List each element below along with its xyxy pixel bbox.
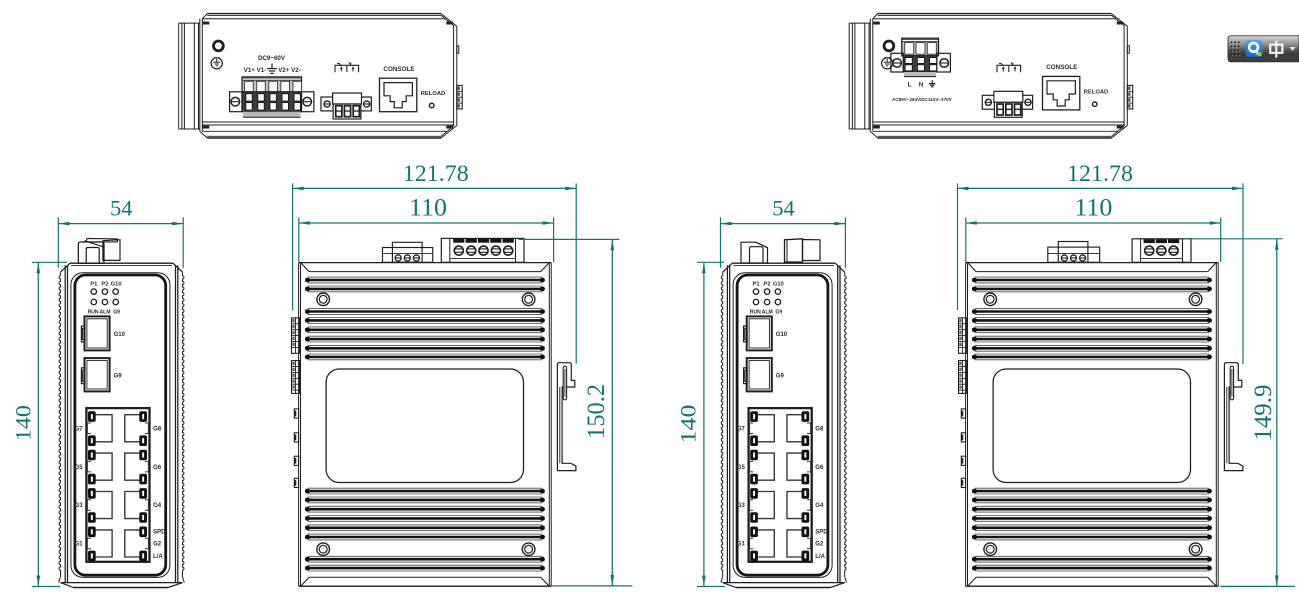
svg-text:G9: G9 — [776, 373, 785, 379]
svg-text:L/A: L/A — [815, 554, 825, 560]
svg-text:G6: G6 — [815, 465, 824, 471]
svg-text:P1: P1 — [90, 281, 98, 287]
svg-text:L: L — [908, 82, 912, 89]
svg-text:G5: G5 — [75, 465, 84, 471]
svg-text:P1: P1 — [752, 281, 760, 287]
svg-text:149.9: 149.9 — [1250, 385, 1277, 441]
svg-text:140: 140 — [675, 405, 700, 444]
svg-text:54: 54 — [110, 196, 133, 221]
svg-text:V1+ V1-: V1+ V1- — [244, 67, 267, 74]
svg-text:G9: G9 — [775, 310, 782, 316]
svg-text:CONSOLE: CONSOLE — [1046, 64, 1077, 71]
svg-text:G5: G5 — [737, 465, 746, 471]
svg-text:G10: G10 — [773, 281, 784, 287]
svg-text:G9: G9 — [114, 373, 123, 379]
svg-text:54: 54 — [772, 196, 795, 221]
svg-text:RELOAD: RELOAD — [421, 91, 445, 97]
svg-text:RUN: RUN — [88, 310, 99, 316]
svg-text:P2: P2 — [101, 281, 108, 287]
svg-text:N: N — [919, 82, 924, 89]
svg-text:P2: P2 — [764, 281, 771, 287]
svg-text:G10: G10 — [776, 332, 788, 338]
svg-text:G7: G7 — [737, 426, 746, 432]
svg-text:121.78: 121.78 — [403, 161, 469, 186]
svg-text:ALM: ALM — [99, 310, 110, 316]
svg-text:SPD: SPD — [153, 529, 166, 535]
svg-text:110: 110 — [409, 193, 447, 221]
svg-text:CONSOLE: CONSOLE — [383, 66, 414, 73]
svg-text:G6: G6 — [153, 465, 162, 471]
svg-text:G7: G7 — [75, 426, 84, 432]
svg-text:G10: G10 — [111, 281, 122, 287]
svg-text:V2+ V2-: V2+ V2- — [278, 67, 301, 74]
svg-text:G4: G4 — [815, 503, 824, 509]
svg-text:110: 110 — [1074, 193, 1112, 221]
svg-text:G1: G1 — [737, 542, 746, 548]
svg-text:AC85V~264V/DC110V~370V: AC85V~264V/DC110V~370V — [892, 97, 952, 102]
svg-text:G2: G2 — [153, 542, 162, 548]
svg-text:L/A: L/A — [153, 554, 163, 560]
svg-text:G3: G3 — [75, 503, 84, 509]
svg-text:140: 140 — [10, 405, 35, 441]
svg-text:G4: G4 — [153, 503, 162, 509]
svg-text:RELOAD: RELOAD — [1084, 90, 1108, 96]
svg-text:G8: G8 — [153, 426, 162, 432]
svg-text:SPD: SPD — [815, 529, 828, 535]
svg-text:DC9~60V: DC9~60V — [258, 55, 286, 62]
svg-text:G9: G9 — [113, 310, 120, 316]
svg-text:G8: G8 — [815, 426, 824, 432]
svg-text:RUN: RUN — [750, 310, 761, 316]
svg-text:ALM: ALM — [762, 310, 773, 316]
svg-text:G3: G3 — [737, 503, 746, 509]
svg-text:G2: G2 — [815, 542, 824, 548]
svg-text:150.2: 150.2 — [583, 384, 610, 439]
svg-text:G10: G10 — [114, 332, 126, 338]
svg-text:G1: G1 — [75, 542, 84, 548]
svg-text:121.78: 121.78 — [1067, 161, 1133, 186]
